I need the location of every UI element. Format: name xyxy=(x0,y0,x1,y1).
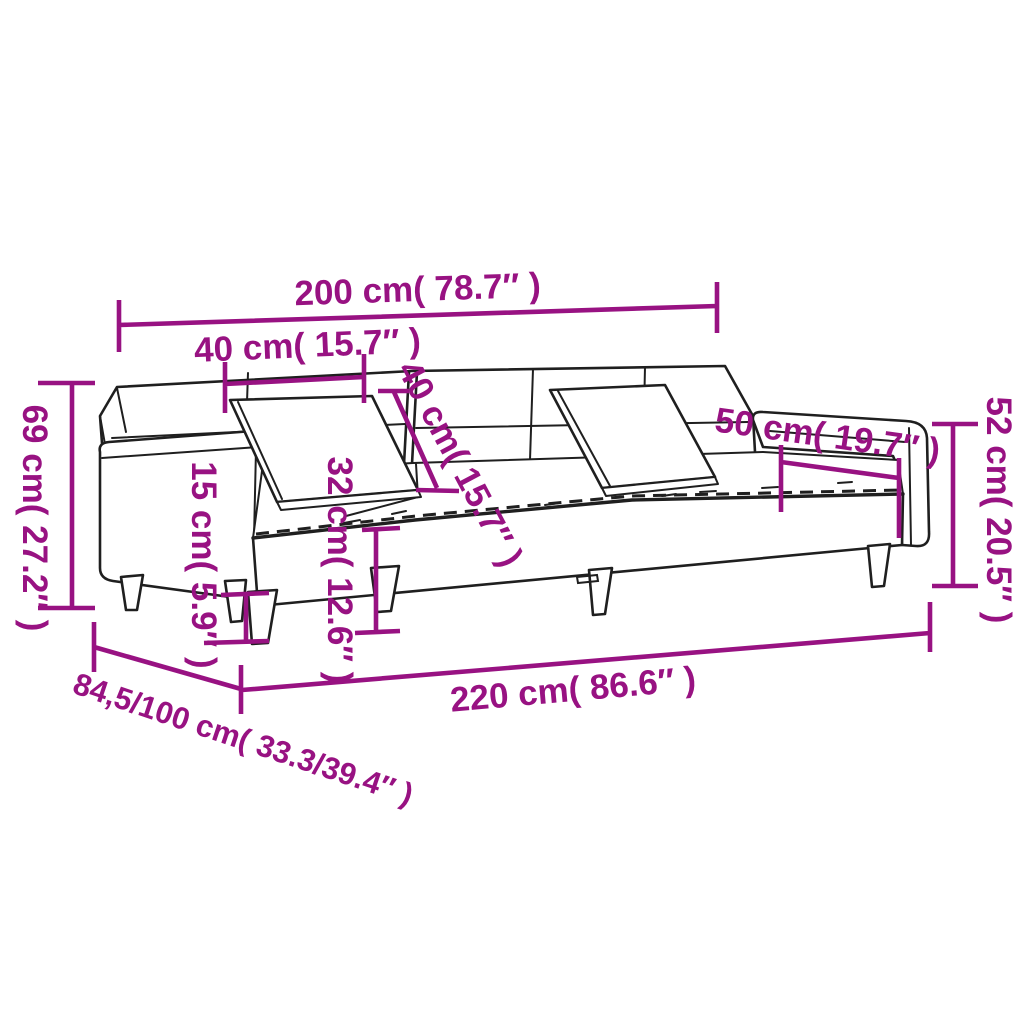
diagram-svg: 200 cm( 78.7″ ) 40 cm( 15.7″ ) 69 cm( 27… xyxy=(0,0,1024,1024)
leg-front-left-back xyxy=(225,580,246,622)
leg-rear-left xyxy=(121,575,143,610)
dim-label-back-cushion-width: 40 cm( 15.7″ ) xyxy=(193,321,421,370)
dim-label-total-height: 69 cm( 27.2″ ) xyxy=(15,405,54,632)
dim-label-back-width: 200 cm( 78.7″ ) xyxy=(294,266,542,314)
leg-front-right xyxy=(868,544,890,587)
sofa-dimension-diagram: 200 cm( 78.7″ ) 40 cm( 15.7″ ) 69 cm( 27… xyxy=(0,0,1024,1024)
dim-label-seat-height: 32 cm( 12.6″ ) xyxy=(320,457,359,684)
leg-front-left xyxy=(248,590,277,644)
dim-label-armrest-height: 52 cm( 20.5″ ) xyxy=(979,397,1018,624)
dim-label-leg-height: 15 cm( 5.9″ ) xyxy=(184,461,223,668)
